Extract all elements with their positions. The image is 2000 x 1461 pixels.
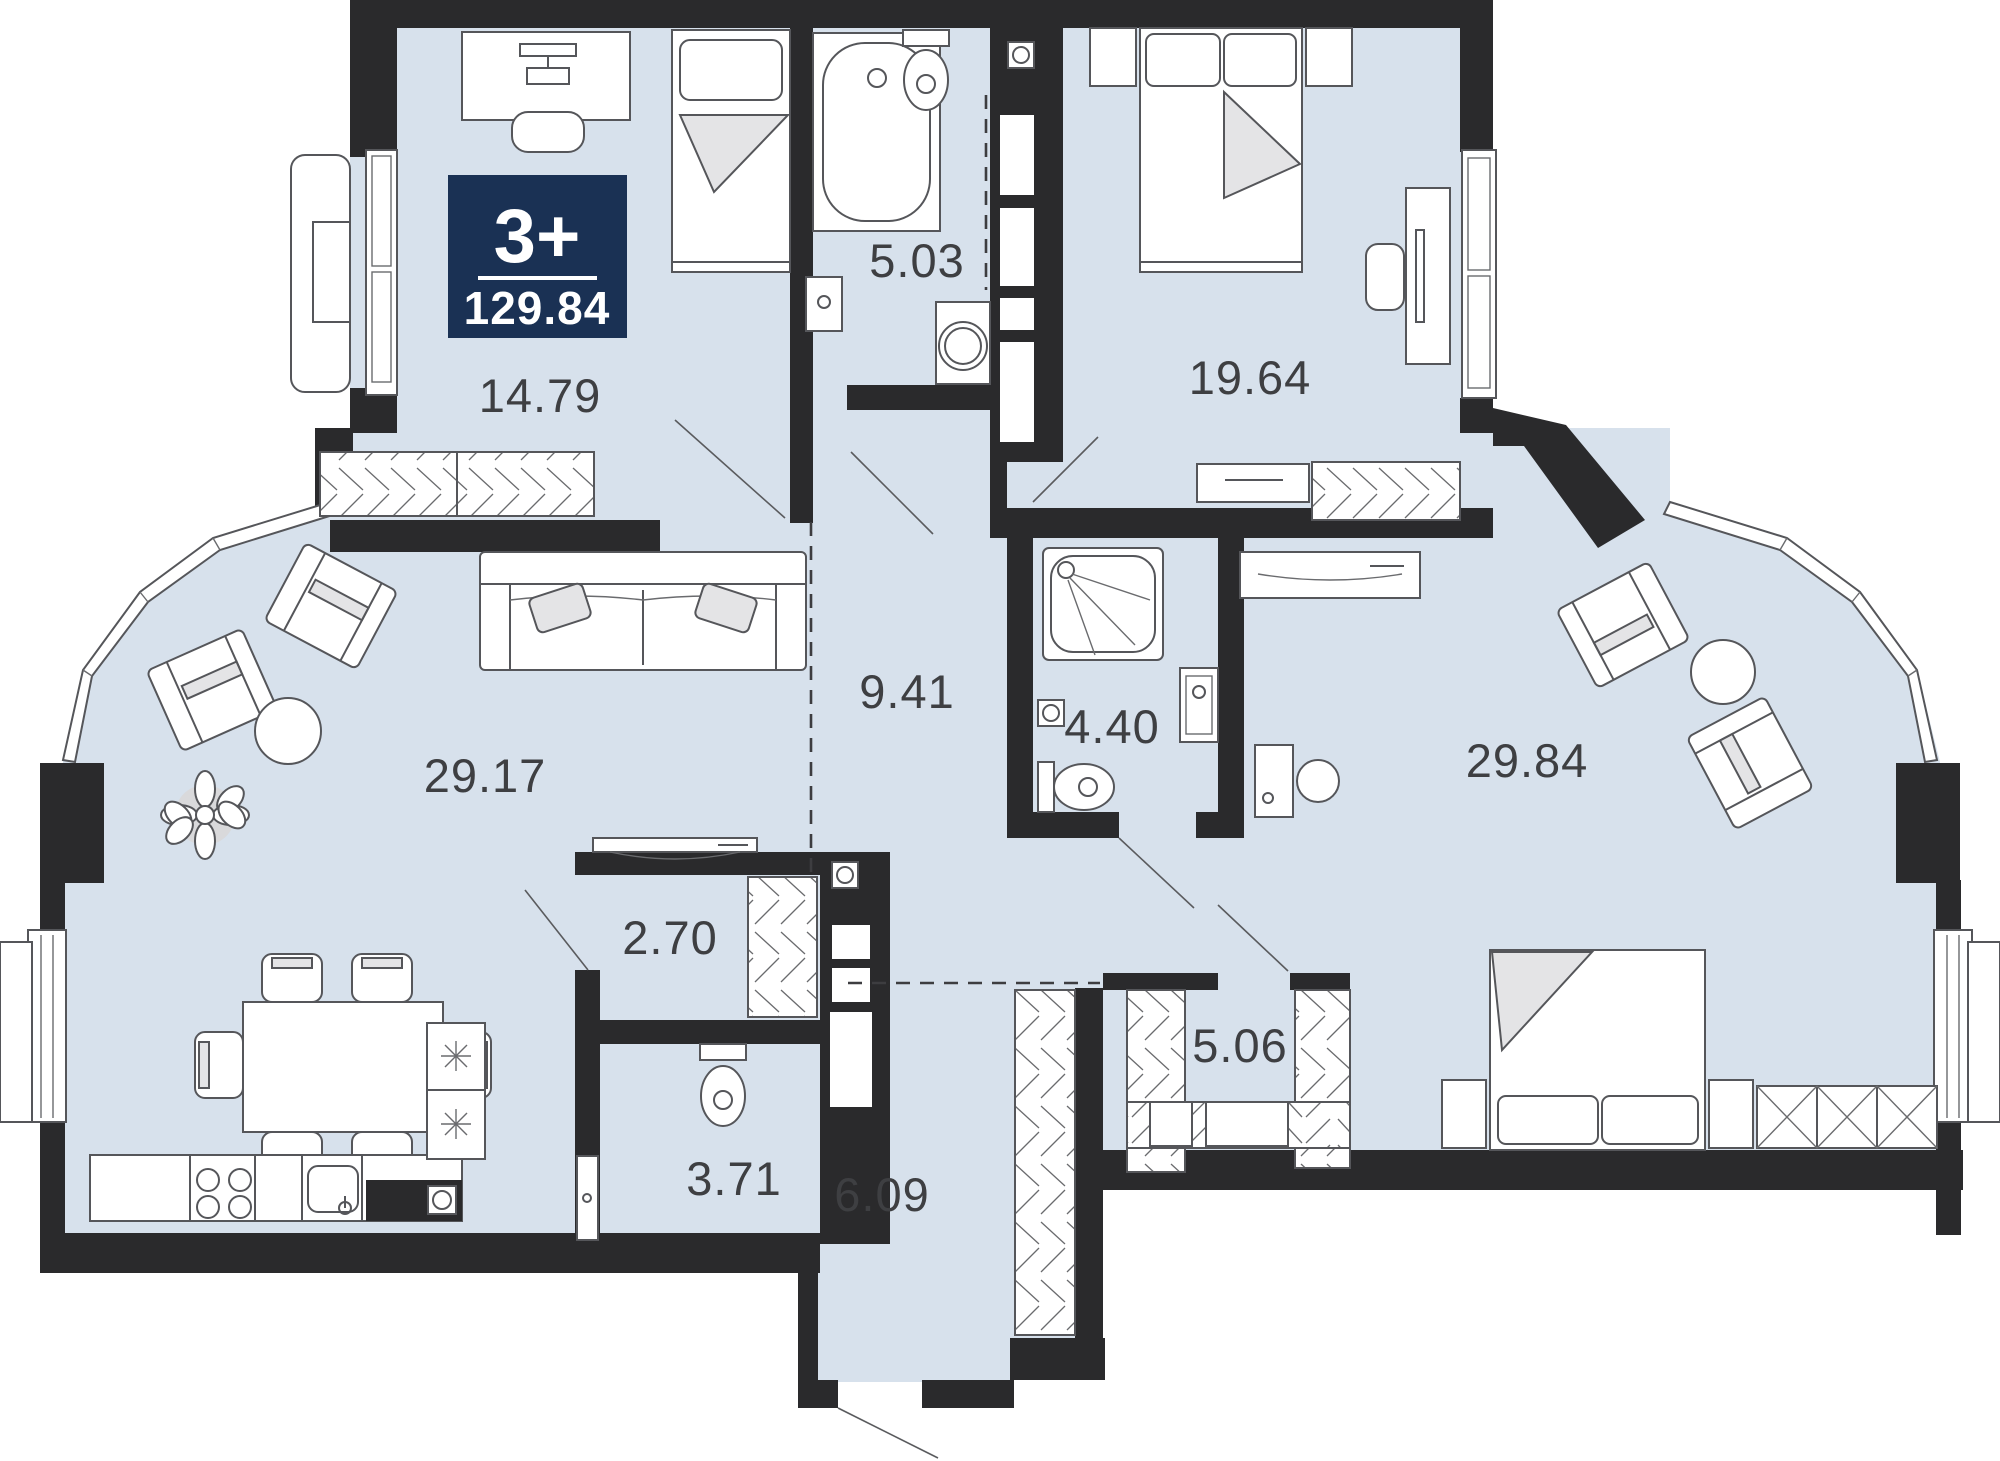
door-leaf bbox=[577, 1156, 598, 1240]
window-left-lower bbox=[28, 930, 66, 1122]
badge-total-area: 129.84 bbox=[464, 282, 611, 334]
badge-rooms-count: 3+ bbox=[494, 194, 581, 279]
room-label-wc: 3.71 bbox=[686, 1152, 781, 1205]
balcony-bottom-right bbox=[1968, 942, 2000, 1122]
room-label-corridor: 9.41 bbox=[859, 665, 954, 718]
hall-wardrobe-icon bbox=[1015, 990, 1075, 1335]
room-label-closet: 2.70 bbox=[622, 911, 717, 964]
coffee-table-icon bbox=[1691, 640, 1755, 704]
balcony-bottom-left bbox=[0, 942, 32, 1122]
toilet-icon bbox=[903, 30, 949, 110]
room-label-shower: 4.40 bbox=[1064, 700, 1159, 753]
floor-plan-page: 3+ 129.84 14.79 bbox=[0, 0, 2000, 1461]
nightstand-icon bbox=[1442, 1080, 1486, 1148]
sliding-wardrobe-icon bbox=[1757, 1086, 1937, 1148]
shower-icon bbox=[1043, 548, 1163, 660]
sofa-icon bbox=[480, 552, 806, 670]
washing-machine-icon bbox=[936, 302, 990, 384]
room-label-bedroom-1: 14.79 bbox=[479, 369, 602, 422]
wardrobe-icon bbox=[1312, 462, 1460, 520]
nightstand-icon bbox=[1709, 1080, 1753, 1148]
room-label-hallway: 6.09 bbox=[834, 1168, 929, 1221]
room-label-bathroom-main: 5.03 bbox=[869, 234, 964, 287]
shoe-cabinet-icon bbox=[1206, 1102, 1288, 1146]
dresser-icon bbox=[1240, 552, 1420, 598]
window-right-lower bbox=[1934, 930, 1972, 1122]
wardrobe-icon bbox=[748, 877, 817, 1017]
room-label-wardrobe: 5.06 bbox=[1192, 1019, 1287, 1072]
nightstand-icon bbox=[1090, 28, 1136, 86]
hall-bench-icon bbox=[1150, 1102, 1192, 1146]
wardrobe-icon bbox=[320, 452, 594, 516]
double-bed-icon bbox=[1140, 28, 1302, 272]
area-badge: 3+ 129.84 bbox=[448, 175, 627, 338]
kitchen-counter-icon bbox=[90, 1155, 462, 1221]
toilet-icon bbox=[1038, 762, 1114, 812]
dresser-icon bbox=[1197, 464, 1309, 502]
room-label-living: 29.17 bbox=[424, 749, 547, 802]
sink-icon bbox=[806, 277, 842, 331]
sink-icon bbox=[1180, 668, 1218, 742]
room-label-bedroom-2: 19.64 bbox=[1189, 351, 1312, 404]
single-bed-icon bbox=[672, 30, 790, 272]
toilet-icon bbox=[700, 1044, 746, 1126]
balcony-top-right bbox=[1462, 150, 1496, 398]
balcony-top-left bbox=[291, 150, 397, 395]
kitchen-cabinet-icon bbox=[427, 1023, 485, 1159]
double-bed-icon bbox=[1490, 950, 1705, 1150]
nightstand-icon bbox=[1306, 28, 1352, 86]
coffee-table-icon bbox=[255, 698, 321, 764]
entrance-door-swing bbox=[838, 1408, 938, 1458]
floor-plan: 3+ 129.84 14.79 bbox=[0, 0, 2000, 1461]
room-label-master: 29.84 bbox=[1466, 734, 1589, 787]
